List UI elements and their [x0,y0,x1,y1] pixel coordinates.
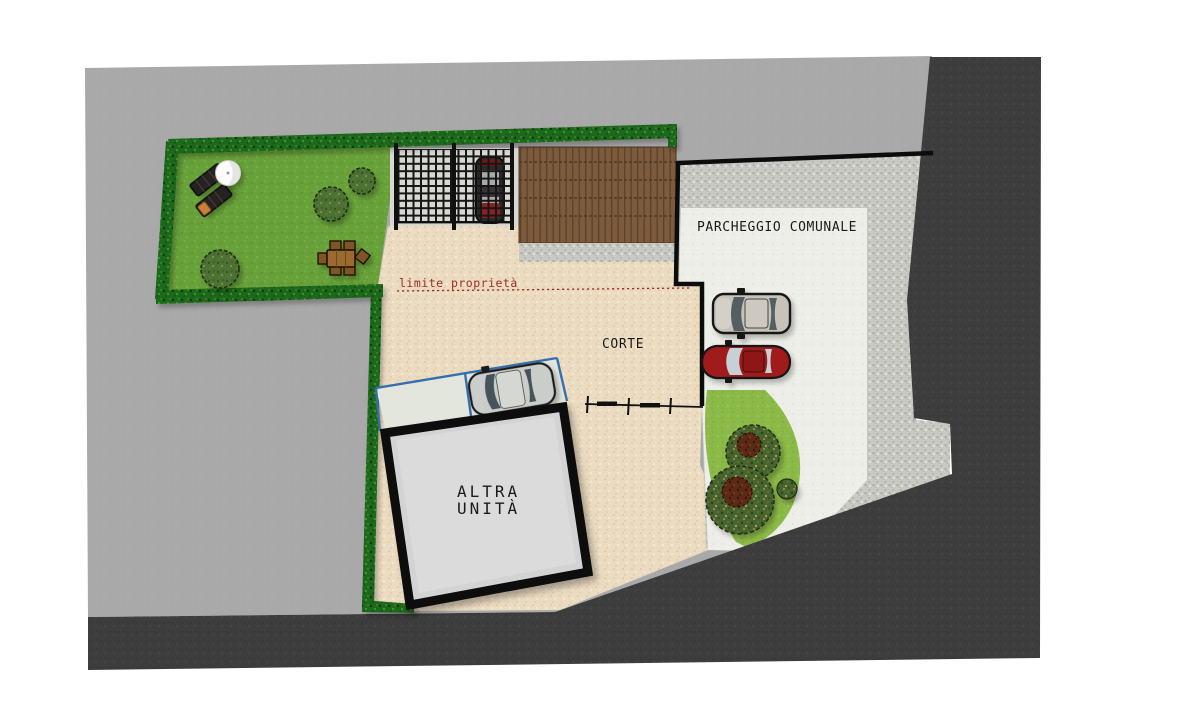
building-label-line2: UNITÀ [457,499,520,518]
umbrella-pole [227,172,230,175]
red-car-mirror [725,378,732,383]
red-car-mirror [725,340,732,345]
tree-center [722,477,752,507]
wood-deck [519,147,676,243]
base-surfaces [0,0,1189,715]
gray-car-roof [745,299,768,328]
tree-center [737,433,761,457]
tree-canopy [777,479,797,499]
stall-car-roof [495,369,526,409]
hedge-top-end-hook [668,124,677,147]
pergola-post [452,143,456,230]
garden-bush [314,187,348,221]
deck-gravel-strip [519,243,676,262]
courtyard-label: CORTE [602,337,644,352]
umbrella [216,161,241,186]
table-chair [330,241,341,250]
gray-car-hood [716,298,731,329]
garden-table [327,250,355,267]
site-plan-canvas: ALTRA UNITÀ [0,0,1189,715]
car-red-parking [702,340,790,383]
table-chair [344,241,355,250]
gray-car-mirror [737,288,745,293]
garden-bush [349,168,375,194]
parking-label: PARCHEGGIO COMUNALE [697,220,857,235]
pergola [394,143,514,230]
pergola-post [394,143,398,230]
gray-car-mirror [737,334,745,339]
fence-dash [597,402,617,407]
pergola-post [510,143,514,230]
fence-dash [640,403,660,408]
red-car-roof [743,351,764,372]
garden-bush [201,250,239,288]
garden-lawn [163,142,392,298]
site-plan-svg: ALTRA UNITÀ [0,0,1189,715]
pergola-beam-bottom [394,221,514,223]
car-gray-parking [713,288,790,339]
deck-planks [519,147,676,243]
property-limit-label: limite proprietà [399,276,518,290]
table-chair [318,253,327,264]
